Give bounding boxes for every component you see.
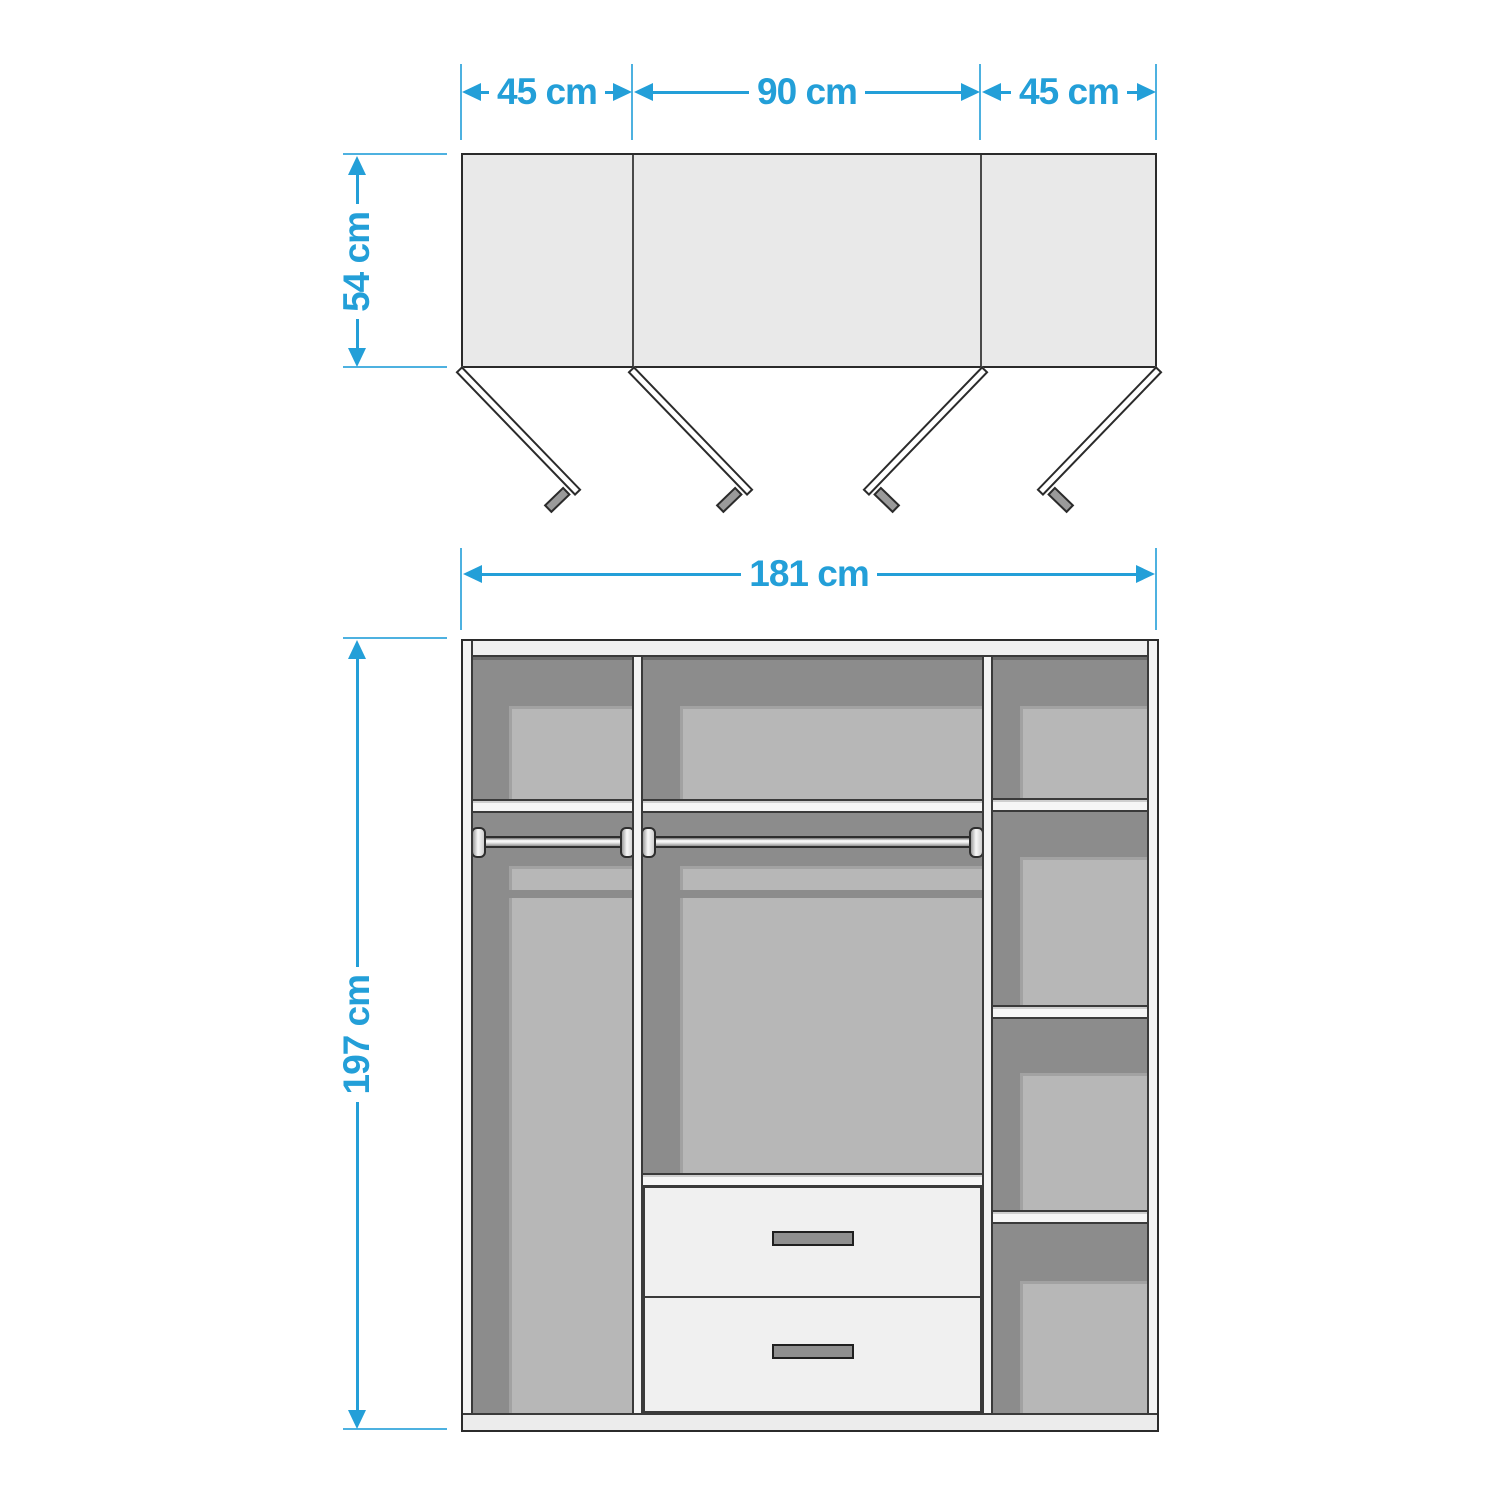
- door-handle: [1047, 487, 1074, 514]
- drawer-handle: [772, 1231, 854, 1246]
- arrow-left-icon: [463, 565, 482, 583]
- shelf-1: [993, 798, 1147, 812]
- door-1: [456, 366, 582, 496]
- rail-end-cap: [969, 827, 982, 858]
- rail-end-cap: [473, 827, 486, 858]
- dimension-door-width-left: 45 cm: [462, 74, 632, 110]
- compartment-shading: [680, 706, 982, 799]
- shelf-3: [993, 1210, 1147, 1224]
- dimension-label: 45 cm: [489, 71, 605, 113]
- top-view-body: [461, 153, 1157, 368]
- dimension-overall-width: 181 cm: [463, 556, 1155, 592]
- dimension-label: 45 cm: [1011, 71, 1127, 113]
- extension-line: [460, 548, 462, 630]
- vertical-partition: [632, 657, 643, 1413]
- door-handle: [716, 487, 743, 514]
- dimension-door-width-middle: 90 cm: [634, 74, 980, 110]
- shelf-2: [993, 1005, 1147, 1019]
- top-view-partition: [632, 155, 634, 366]
- dimension-line: [653, 91, 749, 94]
- dimension-line: [481, 91, 489, 94]
- dimension-door-width-right: 45 cm: [982, 74, 1156, 110]
- extension-line: [343, 637, 447, 639]
- right-side-panel: [1147, 641, 1157, 1430]
- top-panel: [463, 641, 1157, 657]
- extension-line: [343, 153, 447, 155]
- compartment-shading: [1020, 1281, 1147, 1413]
- door-4: [1037, 366, 1163, 496]
- dimension-line: [356, 319, 359, 348]
- arrow-down-icon: [348, 1410, 366, 1429]
- arrow-right-icon: [961, 83, 980, 101]
- vertical-partition: [982, 657, 993, 1413]
- compartment-shading: [1020, 706, 1147, 798]
- door-handle: [873, 487, 900, 514]
- top-shelf: [473, 799, 633, 813]
- dimension-label: 54 cm: [336, 204, 378, 320]
- drawer-1: [643, 1186, 982, 1298]
- arrow-right-icon: [613, 83, 632, 101]
- dimension-line: [877, 573, 1136, 576]
- front-view-body: [461, 639, 1159, 1432]
- extension-line: [1155, 548, 1157, 630]
- column-left-hanging: [473, 657, 633, 1413]
- dimension-line: [1127, 91, 1137, 94]
- dimension-line: [865, 91, 961, 94]
- dimension-line: [356, 175, 359, 204]
- compartment-shading: [509, 866, 633, 1413]
- compartment-shading-band: [680, 890, 982, 898]
- drawer-2: [643, 1296, 982, 1413]
- top-view-partition: [980, 155, 982, 366]
- dimension-overall-height: 197 cm: [337, 640, 377, 1429]
- column-right-shelves: [993, 657, 1147, 1413]
- compartment-shading: [1020, 1073, 1147, 1210]
- rail-end-cap: [643, 827, 656, 858]
- arrow-left-icon: [982, 83, 1001, 101]
- door-2: [628, 366, 754, 496]
- arrow-up-icon: [348, 640, 366, 659]
- arrow-up-icon: [348, 156, 366, 175]
- compartment-shading: [509, 706, 633, 799]
- arrow-right-icon: [1136, 565, 1155, 583]
- arrow-left-icon: [462, 83, 481, 101]
- hanging-rail: [643, 836, 982, 848]
- dimension-depth: 54 cm: [337, 156, 377, 367]
- drawer-top-shelf: [643, 1173, 982, 1187]
- top-shelf: [643, 799, 982, 813]
- dimension-line: [356, 659, 359, 967]
- dimension-label: 197 cm: [336, 967, 378, 1103]
- arrow-right-icon: [1137, 83, 1156, 101]
- column-middle-hanging-drawers: [643, 657, 982, 1413]
- wardrobe-dimension-diagram: 45 cm 90 cm 45 cm 54 cm: [0, 0, 1500, 1500]
- hanging-rail: [473, 836, 633, 848]
- dimension-line: [356, 1102, 359, 1410]
- dimension-label: 181 cm: [741, 553, 877, 595]
- dimension-label: 90 cm: [749, 71, 865, 113]
- dimension-line: [482, 573, 741, 576]
- compartment-shading: [680, 866, 982, 1173]
- door-handle: [544, 487, 571, 514]
- arrow-down-icon: [348, 348, 366, 367]
- arrow-left-icon: [634, 83, 653, 101]
- compartment-shading-band: [509, 890, 633, 898]
- drawer-handle: [772, 1344, 854, 1359]
- base-plinth: [463, 1413, 1157, 1430]
- left-side-panel: [463, 641, 473, 1430]
- door-3: [863, 366, 989, 496]
- dimension-line: [1001, 91, 1011, 94]
- compartment-shading: [1020, 857, 1147, 1005]
- dimension-line: [605, 91, 613, 94]
